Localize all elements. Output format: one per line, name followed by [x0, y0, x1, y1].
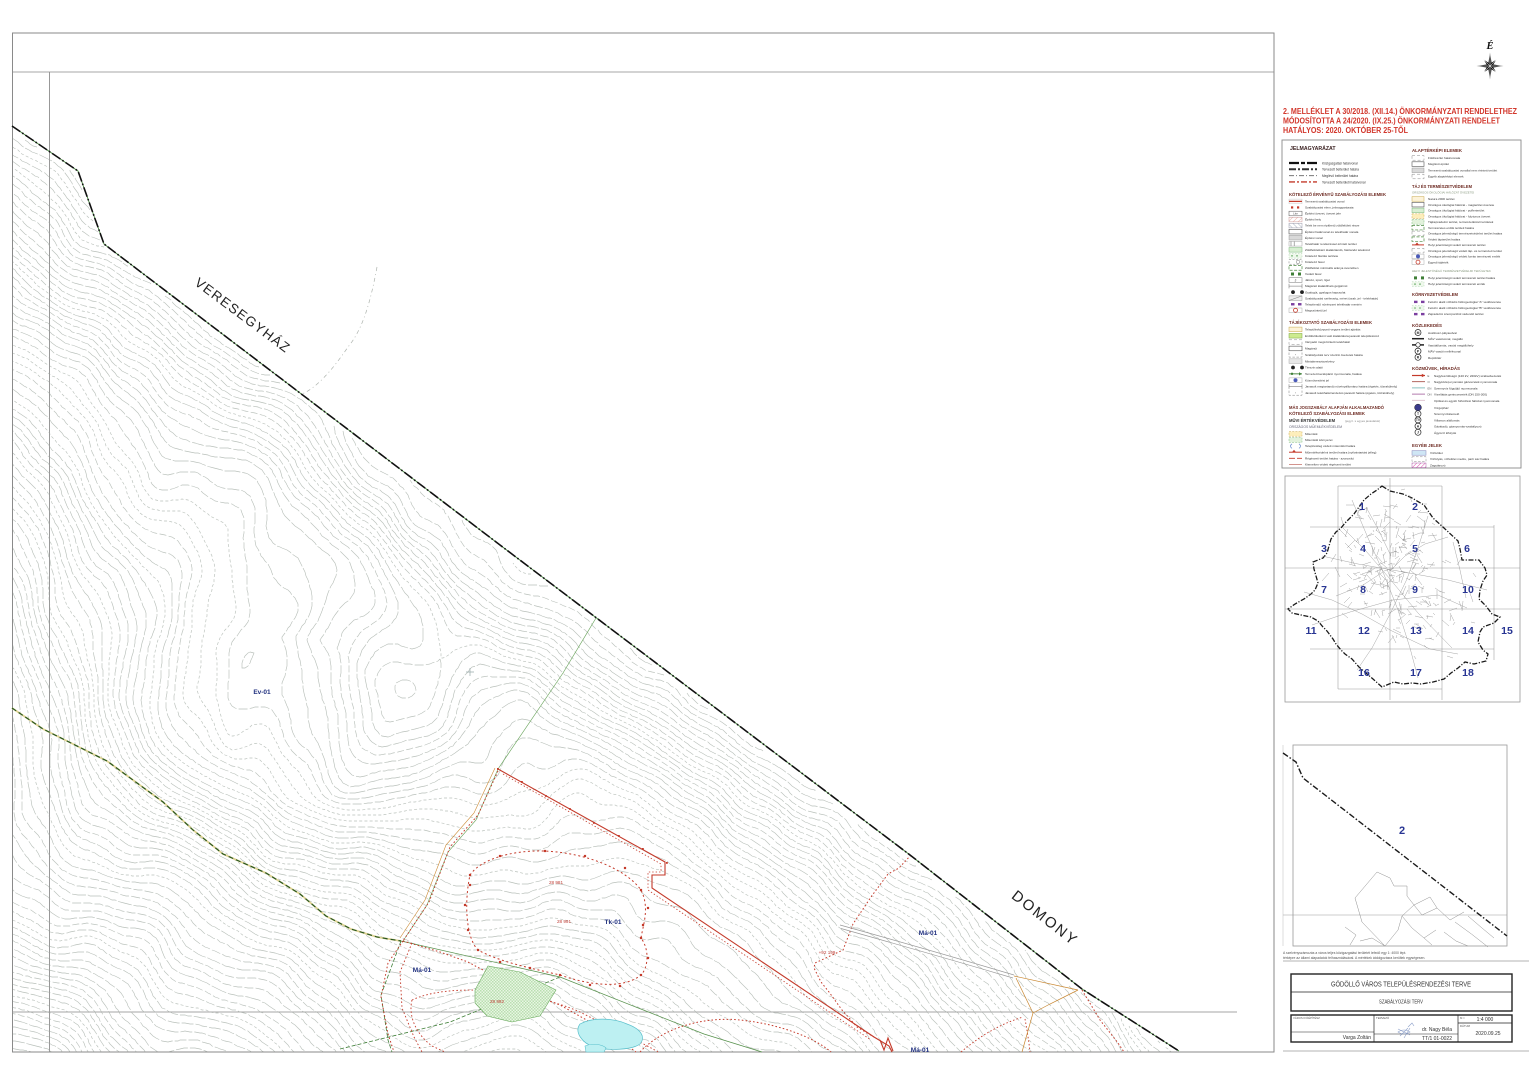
svg-text:Helyi jelentőségű védett termé: Helyi jelentőségű védett természeti terü…: [1428, 243, 1486, 247]
svg-text:SZABÁLYOZÁSI TERV: SZABÁLYOZÁSI TERV: [1379, 999, 1424, 1006]
svg-text:térképre az állami alapadatok: térképre az állami alapadatok felhasznál…: [1283, 956, 1425, 960]
svg-text:KÖZMŰVEK, HÍRADÁS: KÖZMŰVEK, HÍRADÁS: [1412, 364, 1460, 371]
svg-text:Közművesítési jel: Közművesítési jel: [1305, 378, 1329, 382]
svg-text:Vasútállomás, vasúti megállóhe: Vasútállomás, vasúti megállóhely: [1428, 343, 1474, 347]
svg-text:Felszín alatti vízbázis hidrog: Felszín alatti vízbázis hidrogeológiai "…: [1428, 300, 1501, 304]
svg-text:Országos jelentőségű védett fo: Országos jelentőségű védett forrás termé…: [1428, 255, 1501, 259]
svg-text:Térszín alatti: Térszín alatti: [1305, 366, 1323, 370]
svg-text:Megszüntető jel: Megszüntető jel: [1305, 308, 1327, 312]
svg-text:2: 2: [1399, 825, 1405, 837]
svg-text:Erdőfelületként való kialakítá: Erdőfelületként való kialakításra javaso…: [1305, 334, 1380, 338]
svg-text:Repülőtér: Repülőtér: [1428, 356, 1441, 360]
svg-text:VÁROSI FŐÉPÍTÉSZ: VÁROSI FŐÉPÍTÉSZ: [1293, 1015, 1320, 1020]
svg-text:DÁTUM: DÁTUM: [1460, 1024, 1471, 1028]
svg-text:7: 7: [1321, 584, 1327, 596]
svg-text:11: 11: [1305, 625, 1316, 637]
svg-text:1:4 000: 1:4 000: [1477, 1017, 1494, 1023]
svg-text:Kötelező fasor: Kötelező fasor: [1305, 260, 1325, 264]
svg-text:(jegyz. s egyes javaslatok): (jegyz. s egyes javaslatok): [1345, 419, 1380, 423]
svg-text:Tervezett belterület határa: Tervezett belterület határa: [1322, 168, 1359, 172]
svg-text:Kötelező fásítás területe: Kötelező fásítás területe: [1305, 254, 1338, 258]
svg-text:Védett fasor: Védett fasor: [1305, 272, 1322, 276]
svg-text:Magánút kialakítható gépjármű: Magánút kialakítható gépjármű: [1305, 284, 1348, 288]
svg-text:Irányadó megszüntető telekhatá: Irányadó megszüntető telekhatár: [1305, 340, 1350, 344]
svg-text:MŰVI ÉRTÉKVÉDELEM: MŰVI ÉRTÉKVÉDELEM: [1289, 418, 1336, 423]
svg-text:Telek be nem építhető zöldfelü: Telek be nem építhető zöldfelületi része: [1305, 224, 1360, 228]
svg-text:MÁV vasúti mellékvonal: MÁV vasúti mellékvonal: [1428, 350, 1461, 354]
svg-text:Tájképvédelmi terület, termész: Tájképvédelmi terület, természetközeli t…: [1428, 220, 1494, 224]
svg-text:Közigazgatási határvonal: Közigazgatási határvonal: [1322, 161, 1358, 165]
svg-text:2020.09.25: 2020.09.25: [1475, 1031, 1500, 1037]
svg-text:Optikai és egyéb hírközlési há: Optikai és egyéb hírközlési hálózat nyom…: [1434, 399, 1500, 403]
svg-text:KÖRNYEZETVÉDELEM: KÖRNYEZETVÉDELEM: [1412, 290, 1458, 297]
svg-text:Nagyközép-nyomású gázvezeték n: Nagyközép-nyomású gázvezeték nyomvonala: [1434, 380, 1497, 384]
svg-text:Országos jelentőségű természet: Országos jelentőségű természetvédelmi te…: [1428, 232, 1502, 236]
svg-text:EN: EN: [1428, 386, 1432, 390]
svg-text:Felszín alatti vízbázis hidrog: Felszín alatti vízbázis hidrogeológiai "…: [1428, 306, 1501, 310]
svg-text:TV: TV: [1416, 418, 1421, 422]
svg-text:DN: DN: [1428, 393, 1432, 397]
svg-text:Varga Zoltán: Varga Zoltán: [1343, 1035, 1371, 1041]
svg-text:Műemlék: Műemlék: [1305, 432, 1318, 436]
svg-text:MÓDOSÍTOTTA A 24/2020. (IX.25.: MÓDOSÍTOTTA A 24/2020. (IX.25.) ÖNKORMÁN…: [1283, 115, 1501, 126]
svg-text:KÖTELEZŐ SZABÁLYOZÁSI ELEMEK: KÖTELEZŐ SZABÁLYOZÁSI ELEMEK: [1289, 410, 1366, 416]
svg-text:ALAPTÉRKÉPI ELEMEK: ALAPTÉRKÉPI ELEMEK: [1412, 146, 1463, 153]
svg-text:10: 10: [1462, 584, 1474, 596]
svg-text:Má-01: Má-01: [413, 967, 432, 974]
svg-text:Lke: Lke: [1293, 212, 1298, 216]
svg-text:2. MELLÉKLET A 30/2018. (XII.1: 2. MELLÉKLET A 30/2018. (XII.14.) ÖNKORM…: [1283, 106, 1517, 116]
svg-text:Egyéb alaptérképi elemek: Egyéb alaptérképi elemek: [1428, 175, 1464, 179]
svg-text:HATÁLYOS: 2020. OKTÓBER 25-TŐL: HATÁLYOS: 2020. OKTÓBER 25-TŐL: [1283, 124, 1408, 135]
svg-text:J: J: [1417, 431, 1419, 435]
svg-text:Régészeti terület határa - azo: Régészeti terület határa - azonosító: [1305, 456, 1354, 460]
svg-text:ORSZÁGOS MŰEMLÉKVÉDELEM: ORSZÁGOS MŰEMLÉKVÉDELEM: [1289, 424, 1342, 429]
svg-text:KÖZLEKEDÉS: KÖZLEKEDÉS: [1412, 321, 1442, 328]
svg-text:Tervezett szabályozási vonal: Tervezett szabályozási vonal: [1305, 200, 1345, 204]
svg-text:Országos ökológiai hálózat - m: Országos ökológiai hálózat - magterület …: [1428, 203, 1494, 207]
svg-text:MÁV vasútvonal, megálló: MÁV vasútvonal, megálló: [1428, 337, 1463, 341]
svg-text:Szabályozási elem, jelmagyaráz: Szabályozási elem, jelmagyarázata: [1305, 206, 1354, 210]
svg-text:Helyi jelentőségű védett termé: Helyi jelentőségű védett természeti emlé…: [1428, 282, 1486, 286]
svg-text:Magánút: Magánút: [1305, 347, 1317, 351]
svg-text:Gyalogút, gyalogos kapcsolat: Gyalogút, gyalogos kapcsolat: [1305, 290, 1346, 294]
svg-text:12: 12: [1358, 625, 1370, 637]
svg-text:5: 5: [1412, 543, 1418, 555]
svg-text:Gázátadó, gáznyomás-szabályozó: Gázátadó, gáznyomás-szabályozó: [1434, 425, 1482, 429]
svg-text:Természetes erdők területi hat: Természetes erdők területi határa: [1428, 226, 1474, 230]
svg-text:Vízellátás gerincvezeték (DN 1: Vízellátás gerincvezeték (DN 150-300): [1434, 393, 1487, 397]
svg-text:16: 16: [1358, 667, 1370, 679]
svg-text:Tervezett kerékpárút nyomvonal: Tervezett kerékpárút nyomvonala, hatása: [1305, 372, 1362, 376]
svg-text:Zöldfelületként kialakítandó,: Zöldfelületként kialakítandó, fásítandó …: [1305, 248, 1371, 252]
svg-text:Védett lápterület határa: Védett lápterület határa: [1428, 237, 1460, 241]
svg-text:Má-01: Má-01: [911, 1047, 930, 1054]
svg-text:Szabályozási terv szerinti öve: Szabályozási terv szerinti övezetek hatá…: [1305, 353, 1363, 357]
svg-text:Zöldfelület minimális aránya ö: Zöldfelület minimális aránya övezetben: [1305, 266, 1359, 270]
svg-text:Telekhatár rendezéssel érintet: Telekhatár rendezéssel érintett terület: [1305, 242, 1357, 246]
svg-text:M: M: [1417, 331, 1420, 335]
svg-text:Helyi jelentőségű védett termé: Helyi jelentőségű védett természeti terü…: [1428, 276, 1495, 280]
svg-text:28 991: 28 991: [557, 919, 571, 924]
svg-text:18: 18: [1462, 667, 1474, 679]
svg-text:JELMAGYARÁZAT: JELMAGYARÁZAT: [1290, 145, 1336, 152]
svg-text:+92 199: +92 199: [819, 950, 836, 955]
svg-text:Tervezett szabályozási vonalla: Tervezett szabályozási vonallal nem érin…: [1428, 168, 1497, 172]
svg-text:8: 8: [1360, 584, 1366, 596]
svg-text:2: 2: [1412, 501, 1418, 513]
svg-text:28 992: 28 992: [490, 999, 504, 1004]
svg-text:Műemléki környezet: Műemléki környezet: [1305, 438, 1333, 442]
svg-text:15: 15: [1501, 625, 1513, 637]
svg-text:Játszó, sport, liget: Játszó, sport, liget: [1305, 278, 1330, 282]
svg-text:4: 4: [1360, 543, 1366, 555]
svg-text:HELYI JELENTŐSÉGŰ TERMÉSZETVÉD: HELYI JELENTŐSÉGŰ TERMÉSZETVÉDELMI TERÜL…: [1412, 268, 1491, 273]
svg-text:TT/1 01-0022: TT/1 01-0022: [1422, 1036, 1452, 1042]
svg-text:Zajvédelmi szempontból védendő: Zajvédelmi szempontból védendő terület: [1428, 312, 1484, 316]
svg-text:6: 6: [1464, 543, 1470, 555]
svg-text:13: 13: [1410, 625, 1422, 637]
svg-text:17: 17: [1410, 667, 1422, 679]
svg-text:ORSZÁGOS ÖKOLÓGIAI HÁLÓZAT ÖVE: ORSZÁGOS ÖKOLÓGIAI HÁLÓZAT ÖVEZETEI: [1412, 190, 1474, 195]
svg-text:Javasolt telekhatárrendezés ja: Javasolt telekhatárrendezés javasolt hat…: [1305, 391, 1394, 395]
svg-text:Építési hely: Építési hely: [1305, 217, 1321, 222]
svg-text:MÁS JOGSZABÁLY ALAPJÁN ALKALMA: MÁS JOGSZABÁLY ALAPJÁN ALKALMAZANDÓ: [1289, 403, 1384, 410]
svg-text:Szennyvízátemelő: Szennyvízátemelő: [1434, 412, 1460, 416]
svg-text:dr. Nagy Béla: dr. Nagy Béla: [1422, 1027, 1452, 1033]
svg-text:Ágyúvíz kifolyók: Ágyúvíz kifolyók: [1434, 431, 1457, 435]
svg-text:Országos ökológiai hálózat - p: Országos ökológiai hálózat - pufferterül…: [1428, 209, 1484, 213]
svg-text:Építési vonal: Építési vonal: [1305, 235, 1323, 240]
svg-text:Településközponti vegyes terül: Településközponti vegyes terület ajánlás: [1305, 328, 1361, 332]
svg-text:Szennyvíz főgyűjtő nyomvonala: Szennyvíz főgyűjtő nyomvonala: [1434, 386, 1478, 390]
svg-text:Országos ökológiai hálózat - f: Országos ökológiai hálózat - folytonos ö…: [1428, 214, 1490, 218]
svg-text:Földrészlet határvonala: Földrészlet határvonala: [1428, 156, 1460, 160]
svg-text:GÖDÖLLŐ VÁROS TELEPÜLÉSRENDEZÉ: GÖDÖLLŐ VÁROS TELEPÜLÉSRENDEZÉSI TERVE: [1331, 980, 1471, 989]
svg-text:TÁJÉKOZTATÓ SZABÁLYOZÁSI ELEME: TÁJÉKOZTATÓ SZABÁLYOZÁSI ELEMEK: [1289, 318, 1373, 325]
svg-text:TÁJ ÉS TERMÉSZETVÉDELEM: TÁJ ÉS TERMÉSZETVÉDELEM: [1412, 182, 1472, 189]
svg-text:EGYÉB JELEK: EGYÉB JELEK: [1412, 441, 1443, 448]
svg-text:Telepítendő növényzet telekhat: Telepítendő növényzet telekhatár mentén: [1305, 302, 1362, 306]
svg-text:Építési övezet, övezet jele: Építési övezet, övezet jele: [1305, 211, 1341, 216]
svg-text:Villamos alállomás: Villamos alállomás: [1434, 418, 1460, 422]
svg-text:Ev-01: Ev-01: [253, 689, 271, 696]
svg-text:E: E: [1428, 374, 1430, 378]
svg-text:Tk-01: Tk-01: [605, 919, 622, 926]
svg-text:Javasolt megtartandó növényáll: Javasolt megtartandó növényállomány hatá…: [1305, 385, 1397, 389]
svg-text:Vízfolyás, vízfelület medre, p: Vízfolyás, vízfelület medre, parti sáv h…: [1430, 457, 1489, 461]
svg-text:1: 1: [1359, 501, 1365, 513]
svg-text:14: 14: [1462, 625, 1474, 637]
svg-text:Meglévő belterület határa: Meglévő belterület határa: [1322, 174, 1358, 178]
svg-text:É: É: [1485, 40, 1493, 52]
svg-text:Vízfelület: Vízfelület: [1430, 451, 1443, 455]
svg-text:Egyedi tájérték: Egyedi tájérték: [1428, 260, 1449, 264]
svg-text:Zagytározó: Zagytározó: [1430, 463, 1446, 467]
svg-text:M =: M =: [1460, 1016, 1465, 1020]
svg-text:Vízgépház: Vízgépház: [1434, 406, 1449, 410]
svg-text:Mintakeresztszelvény: Mintakeresztszelvény: [1305, 359, 1335, 363]
svg-text:Kiemelten védett régészeti ter: Kiemelten védett régészeti terület: [1305, 463, 1351, 467]
svg-text:9: 9: [1412, 584, 1418, 596]
svg-text:3: 3: [1321, 543, 1327, 555]
svg-text:Építési határvonal és telekhat: Építési határvonal és telekhatár vonala: [1305, 229, 1359, 234]
svg-text:Nagyfeszültségű (120 kV, 220kV: Nagyfeszültségű (120 kV, 220kV) szabadve…: [1434, 374, 1502, 378]
svg-text:28 981: 28 981: [549, 880, 563, 885]
svg-text:Tervezett belterületi határvon: Tervezett belterületi határvonal: [1322, 180, 1366, 184]
svg-text:Országos jelentőségű védett lá: Országos jelentőségű védett láp- és term…: [1428, 249, 1502, 253]
svg-text:TERVEZŐ: TERVEZŐ: [1376, 1015, 1390, 1020]
svg-text:J: J: [1295, 278, 1297, 282]
svg-text:KÖTELEZŐ ÉRVÉNYŰ SZABÁLYOZÁSI: KÖTELEZŐ ÉRVÉNYŰ SZABÁLYOZÁSI ELEMEK: [1289, 190, 1387, 197]
svg-text:Műemlékvédelmi terület határa: Műemlékvédelmi terület határa (nyilvánta…: [1305, 450, 1376, 454]
svg-text:Telepítésileg védett műemléki: Telepítésileg védett műemléki határa: [1305, 444, 1355, 448]
svg-text:A szelvényszámozás a város tel: A szelvényszámozás a város teljes köziga…: [1283, 951, 1406, 955]
svg-text:Natura 2000 terület: Natura 2000 terület: [1428, 197, 1455, 201]
svg-text:Szabályozási szélesség, méret: Szabályozási szélesség, méret (szab. jel…: [1305, 296, 1378, 300]
svg-text:Má-01: Má-01: [919, 930, 938, 937]
svg-text:Meglévő épület: Meglévő épület: [1428, 162, 1449, 166]
svg-text:Autóbusz-pályaudvar: Autóbusz-pályaudvar: [1428, 331, 1457, 335]
